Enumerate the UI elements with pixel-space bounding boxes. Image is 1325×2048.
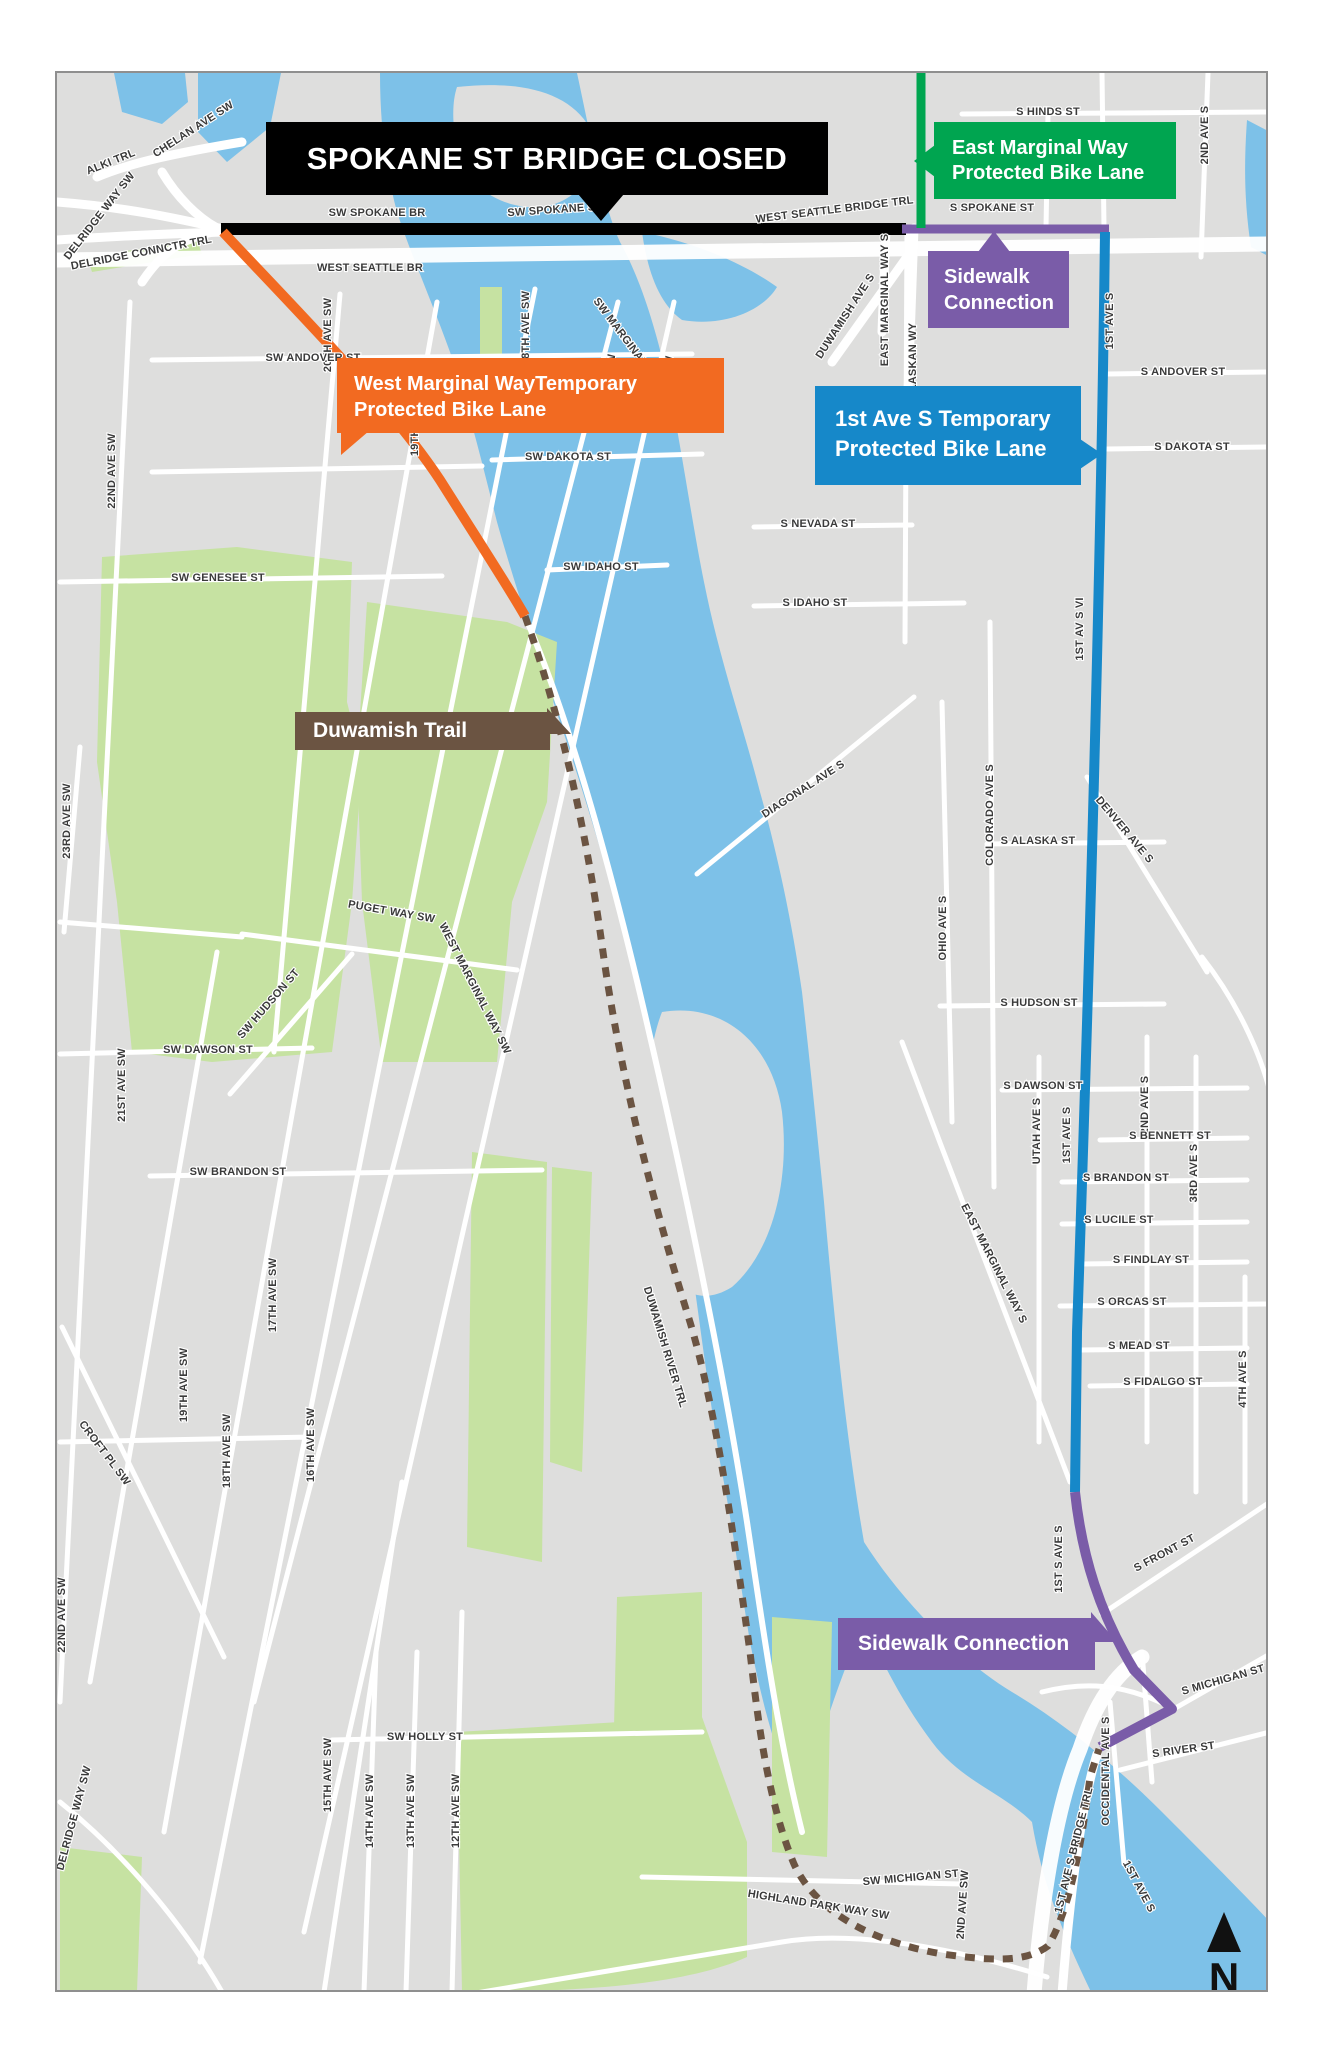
street-label: 14TH AVE SW: [364, 1773, 376, 1848]
street-label: DENVER AVE S: [1093, 794, 1156, 865]
street-label: S RIVER ST: [1151, 1740, 1215, 1761]
street-label: 16TH AVE SW: [305, 1407, 317, 1482]
street-label: S ORCAS ST: [1097, 1296, 1166, 1308]
street-label: S HUDSON ST: [1000, 997, 1077, 1009]
street-label: EAST MARGINAL WAY S: [879, 234, 891, 367]
callout-line: Sidewalk: [944, 264, 1069, 290]
street-label: S LUCILE ST: [1084, 1214, 1154, 1226]
street-label: 15TH AVE SW: [322, 1737, 334, 1812]
street-label: 2ND AVE S: [1199, 106, 1211, 165]
street-label: S FIDALGO ST: [1123, 1376, 1202, 1388]
street-label: SW DAWSON ST: [163, 1044, 253, 1056]
street-label: OHIO AVE S: [937, 896, 949, 961]
street-label: WEST SEATTLE BR: [317, 262, 423, 274]
callout-line: West Marginal WayTemporary: [354, 371, 724, 397]
closed-banner-label: SPOKANE ST BRIDGE CLOSED: [307, 141, 788, 177]
street-label: 1ST AVE S: [1104, 293, 1116, 350]
street-label: S BRANDON ST: [1083, 1172, 1169, 1184]
street-label: S HINDS ST: [1016, 106, 1080, 118]
closed-banner: SPOKANE ST BRIDGE CLOSED: [266, 122, 828, 195]
street-label: S ALASKA ST: [1001, 835, 1076, 847]
street-label: SW DAKOTA ST: [525, 451, 611, 463]
street-label: 2ND AVE S: [1139, 1076, 1151, 1135]
street-label: 18TH AVE SW: [520, 290, 532, 365]
street-label: 21ST AVE SW: [116, 1048, 128, 1122]
street-label: S BENNETT ST: [1129, 1130, 1211, 1142]
street-label: SW BRANDON ST: [190, 1166, 287, 1178]
street-label: 12TH AVE SW: [450, 1773, 462, 1848]
callout-line: Protected Bike Lane: [354, 397, 724, 423]
street-label: 1ST AV S VI: [1074, 597, 1086, 660]
callout-line: Protected Bike Lane: [835, 434, 1081, 464]
street-label: COLORADO AVE S: [984, 764, 996, 866]
callout-first-ave-s: 1st Ave S Temporary Protected Bike Lane: [815, 386, 1081, 485]
callout-line: Protected Bike Lane: [952, 161, 1176, 186]
map-canvas: CHELAN AVE SWALKI TRLDELRIDGE WAY SWDELR…: [0, 0, 1325, 2048]
street-label: S DAWSON ST: [1003, 1080, 1082, 1092]
callout-sidewalk-north: Sidewalk Connection: [928, 251, 1069, 328]
street-label: SW SPOKANE BR: [329, 207, 426, 219]
callout-line: East Marginal Way: [952, 136, 1176, 161]
street-label: S IDAHO ST: [783, 597, 848, 609]
street-label: 4TH AVE S: [1237, 1350, 1249, 1407]
callout-line: 1st Ave S Temporary: [835, 404, 1081, 434]
callout-line: Sidewalk Connection: [858, 1632, 1069, 1656]
street-label: HIGHLAND PARK WAY SW: [747, 1888, 891, 1922]
callout-duwamish-trail: Duwamish Trail: [295, 712, 550, 750]
street-label: SW HOLLY ST: [387, 1731, 463, 1743]
callout-west-marginal: West Marginal WayTemporary Protected Bik…: [337, 358, 724, 433]
street-label: S FINDLAY ST: [1113, 1254, 1189, 1266]
street-label: 13TH AVE SW: [405, 1773, 417, 1848]
street-label: SW GENESEE ST: [171, 572, 265, 584]
street-label: 3RD AVE S: [1188, 1144, 1200, 1203]
street-label: 23RD AVE SW: [61, 783, 73, 859]
street-label: 22ND AVE SW: [106, 433, 118, 509]
callout-line: Connection: [944, 290, 1069, 316]
callout-sidewalk-south: Sidewalk Connection: [838, 1618, 1095, 1670]
callout-east-marginal: East Marginal Way Protected Bike Lane: [934, 122, 1176, 199]
street-label: DIAGONAL AVE S: [760, 758, 847, 820]
north-label: N: [1209, 1954, 1239, 1992]
street-label: S SPOKANE ST: [950, 202, 1034, 214]
street-label: EAST MARGINAL WAY S: [958, 1202, 1029, 1326]
street-label: 22ND AVE SW: [57, 1577, 68, 1653]
street-label: 19TH AVE SW: [178, 1347, 190, 1422]
street-label: S FRONT ST: [1132, 1532, 1197, 1574]
street-label: 17TH AVE SW: [267, 1257, 279, 1332]
street-label: DELRIDGE WAY SW: [62, 170, 138, 262]
street-label: 18TH AVE SW: [221, 1413, 233, 1488]
street-label: 1ST S AVE S: [1053, 1525, 1065, 1593]
street-label: WEST SEATTLE BRIDGE TRL: [755, 194, 914, 225]
street-label: S DAKOTA ST: [1154, 441, 1230, 453]
street-label: S NEVADA ST: [781, 518, 856, 530]
street-label: SW IDAHO ST: [563, 561, 639, 573]
street-label: S ANDOVER ST: [1141, 366, 1226, 378]
street-label: S MEAD ST: [1108, 1340, 1170, 1352]
street-label: UTAH AVE S: [1031, 1098, 1043, 1165]
street-label: OCCIDENTAL AVE S: [1100, 1716, 1112, 1825]
callout-line: Duwamish Trail: [313, 719, 467, 743]
street-label: 1ST AVE S: [1061, 1107, 1073, 1164]
street-label: S MICHIGAN ST: [1180, 1663, 1266, 1698]
